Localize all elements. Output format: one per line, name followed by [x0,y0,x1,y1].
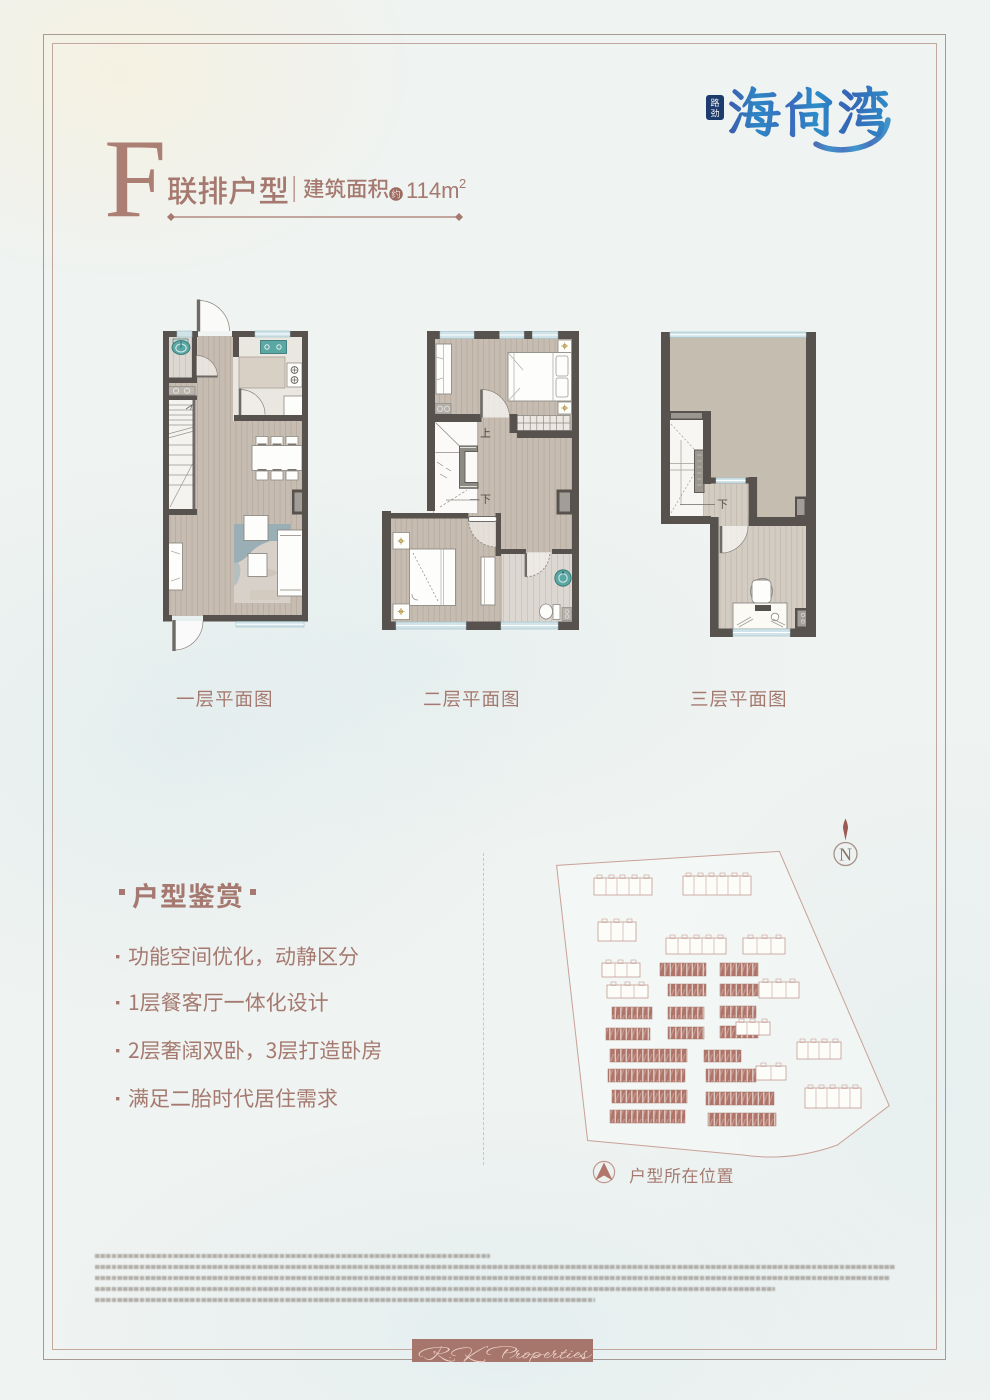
svg-text:2: 2 [459,176,466,191]
svg-text:F: F [104,130,166,225]
svg-text:N: N [839,845,852,865]
svg-text:114m: 114m [406,178,459,203]
